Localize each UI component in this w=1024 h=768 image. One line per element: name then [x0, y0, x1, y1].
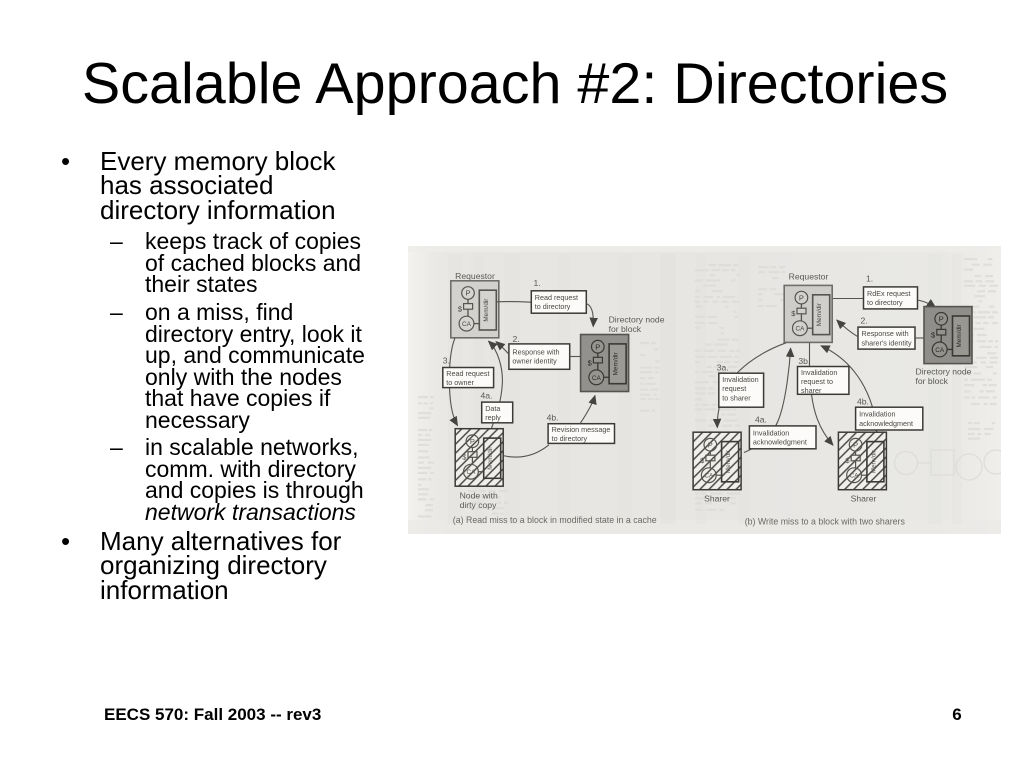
svg-text:request to: request to — [801, 377, 833, 386]
svg-text:4a.: 4a. — [755, 415, 767, 425]
svg-text:Mem/dir: Mem/dir — [816, 302, 823, 326]
svg-text:1.: 1. — [534, 278, 541, 288]
svg-text:CA: CA — [704, 473, 714, 480]
svg-text:P: P — [853, 440, 858, 449]
svg-text:Requestor: Requestor — [455, 271, 495, 281]
svg-text:Revision message: Revision message — [552, 425, 611, 434]
svg-text:Mem/dir: Mem/dir — [613, 351, 620, 375]
svg-text:P: P — [470, 437, 475, 446]
svg-text:Invalidation: Invalidation — [753, 428, 789, 437]
svg-text:3.: 3. — [443, 356, 450, 366]
svg-text:P: P — [708, 440, 713, 449]
svg-text:to directory: to directory — [552, 434, 588, 443]
svg-text:CA: CA — [850, 473, 860, 480]
svg-text:Mem/dir: Mem/dir — [487, 446, 494, 470]
svg-text:P: P — [465, 289, 470, 298]
svg-text:P: P — [939, 315, 944, 324]
svg-text:Read request: Read request — [446, 369, 489, 378]
svg-text:Mem/dir: Mem/dir — [870, 449, 877, 473]
svg-text:Requestor: Requestor — [789, 272, 829, 282]
svg-text:to sharer: to sharer — [722, 393, 751, 402]
svg-text:Data: Data — [485, 404, 500, 413]
svg-text:(b) Write miss to a block with: (b) Write miss to a block with two share… — [745, 516, 906, 526]
svg-text:CA: CA — [462, 321, 472, 328]
svg-text:Mem/dir: Mem/dir — [956, 323, 963, 347]
svg-text:Sharer: Sharer — [851, 494, 877, 504]
svg-text:3b.: 3b. — [798, 356, 810, 366]
svg-text:4b.: 4b. — [547, 413, 559, 423]
svg-text:Sharer: Sharer — [704, 494, 730, 504]
svg-text:Response with: Response with — [862, 329, 909, 338]
svg-text:Read request: Read request — [535, 293, 578, 302]
svg-text:to directory: to directory — [867, 298, 903, 307]
svg-text:sharer: sharer — [801, 386, 822, 395]
svg-text:acknowledgment: acknowledgment — [859, 419, 913, 428]
svg-text:2.: 2. — [513, 334, 520, 344]
svg-text:Invalidation: Invalidation — [801, 368, 837, 377]
svg-text:Invalidation: Invalidation — [859, 410, 895, 419]
svg-text:request: request — [722, 384, 746, 393]
svg-text:dirty copy: dirty copy — [460, 500, 497, 510]
svg-text:Mem/dir: Mem/dir — [725, 449, 732, 473]
svg-text:for block: for block — [916, 376, 949, 386]
svg-text:(a) Read miss to a block in mo: (a) Read miss to a block in modified sta… — [453, 515, 657, 525]
svg-text:Invalidation: Invalidation — [722, 375, 758, 384]
svg-text:Directory node: Directory node — [916, 367, 972, 377]
svg-text:Mem/dir: Mem/dir — [483, 298, 490, 322]
svg-text:3a.: 3a. — [717, 363, 729, 373]
svg-text:CA: CA — [795, 326, 805, 333]
svg-text:owner identity: owner identity — [512, 357, 557, 366]
svg-text:for block: for block — [609, 324, 642, 334]
svg-text:Directory node: Directory node — [609, 315, 665, 325]
svg-text:to owner: to owner — [446, 378, 474, 387]
svg-text:reply: reply — [485, 413, 501, 422]
svg-text:4a.: 4a. — [481, 391, 493, 401]
svg-text:CA: CA — [592, 375, 602, 382]
svg-text:CA: CA — [935, 347, 945, 354]
svg-text:CA: CA — [466, 469, 476, 476]
svg-text:acknowledgment: acknowledgment — [753, 438, 807, 447]
svg-text:1.: 1. — [866, 274, 873, 284]
svg-text:2.: 2. — [861, 316, 868, 326]
svg-text:Response with: Response with — [512, 347, 559, 356]
svg-text:to directory: to directory — [535, 302, 571, 311]
svg-text:RdEx request: RdEx request — [867, 289, 911, 298]
svg-text:sharer's identity: sharer's identity — [862, 338, 913, 347]
svg-text:P: P — [595, 342, 600, 351]
svg-text:P: P — [799, 293, 804, 302]
svg-text:4b.: 4b. — [857, 397, 869, 407]
